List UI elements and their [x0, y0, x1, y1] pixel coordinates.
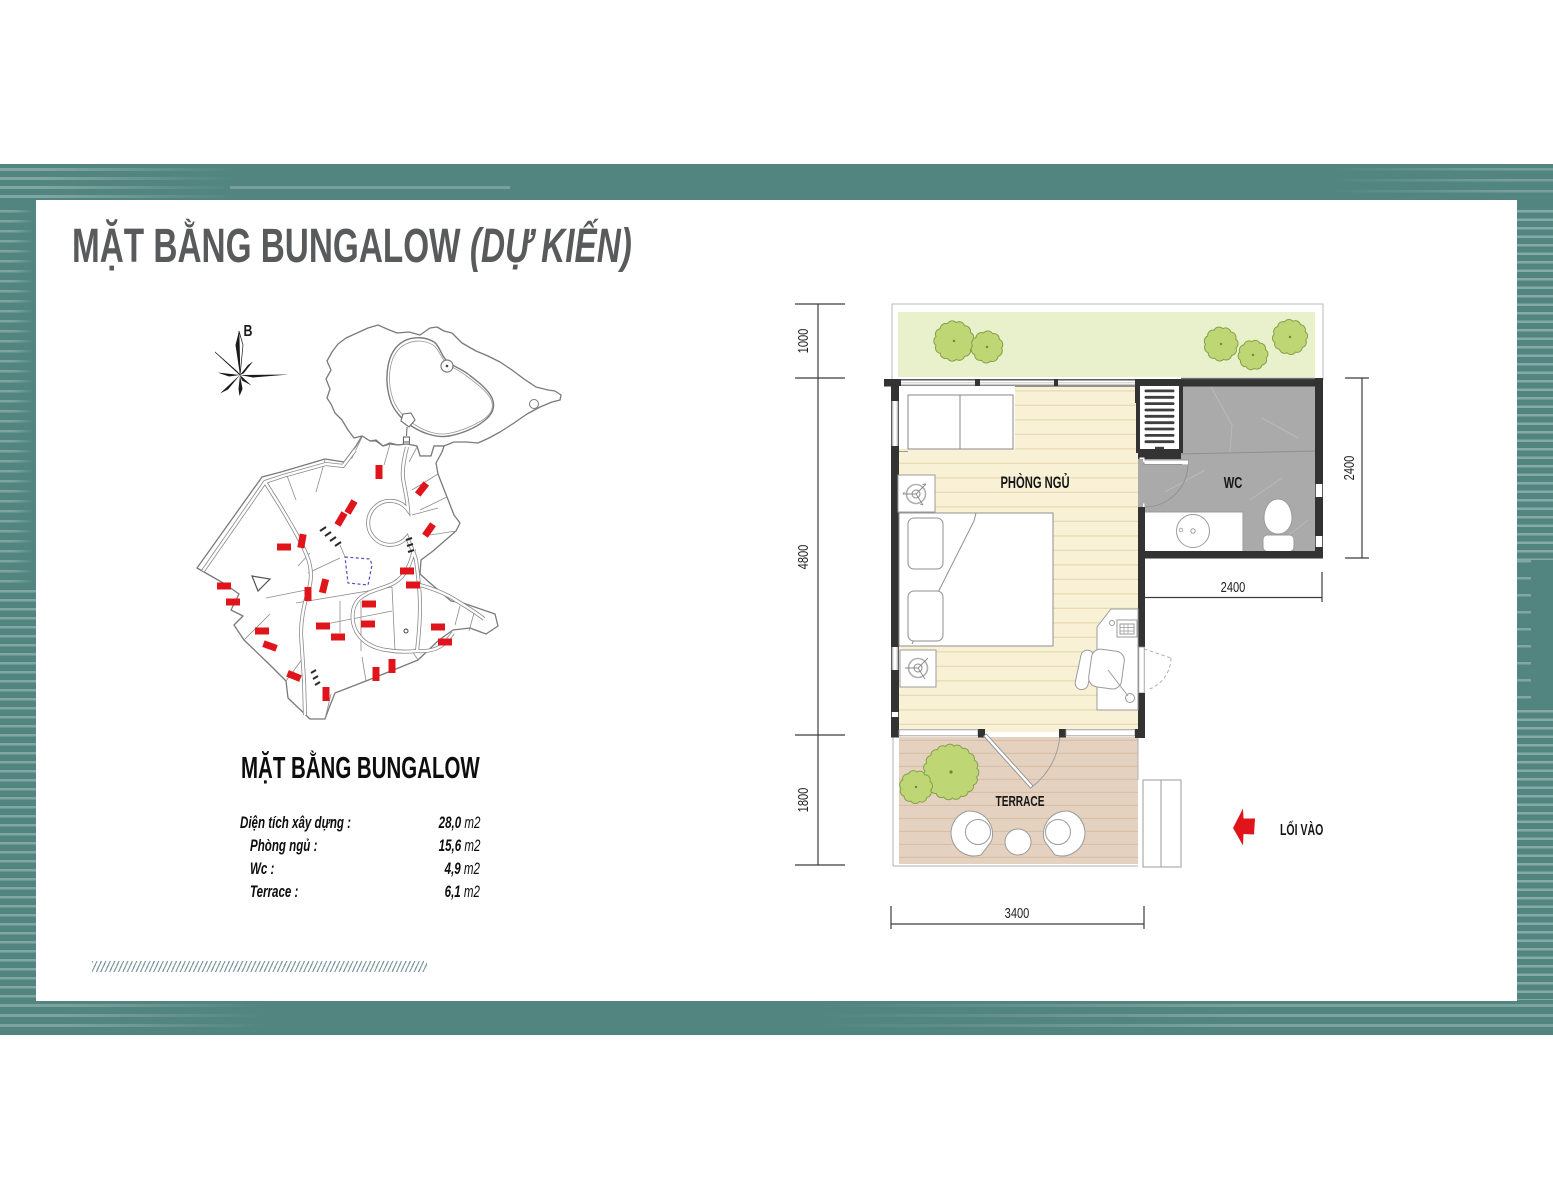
- svg-text:WC: WC: [1224, 474, 1243, 491]
- svg-text:B: B: [244, 323, 253, 341]
- svg-text:PHÒNG NGỦ: PHÒNG NGỦ: [1000, 472, 1069, 492]
- svg-text:3400: 3400: [1005, 904, 1030, 921]
- svg-text:2400: 2400: [1340, 456, 1357, 481]
- svg-text:1000: 1000: [794, 329, 811, 354]
- svg-text:LỐI VÀO: LỐI VÀO: [1280, 821, 1323, 839]
- svg-text:1800: 1800: [794, 788, 811, 813]
- svg-text:TERRACE: TERRACE: [995, 793, 1044, 809]
- svg-text:4800: 4800: [794, 545, 811, 570]
- svg-text:2400: 2400: [1221, 578, 1246, 595]
